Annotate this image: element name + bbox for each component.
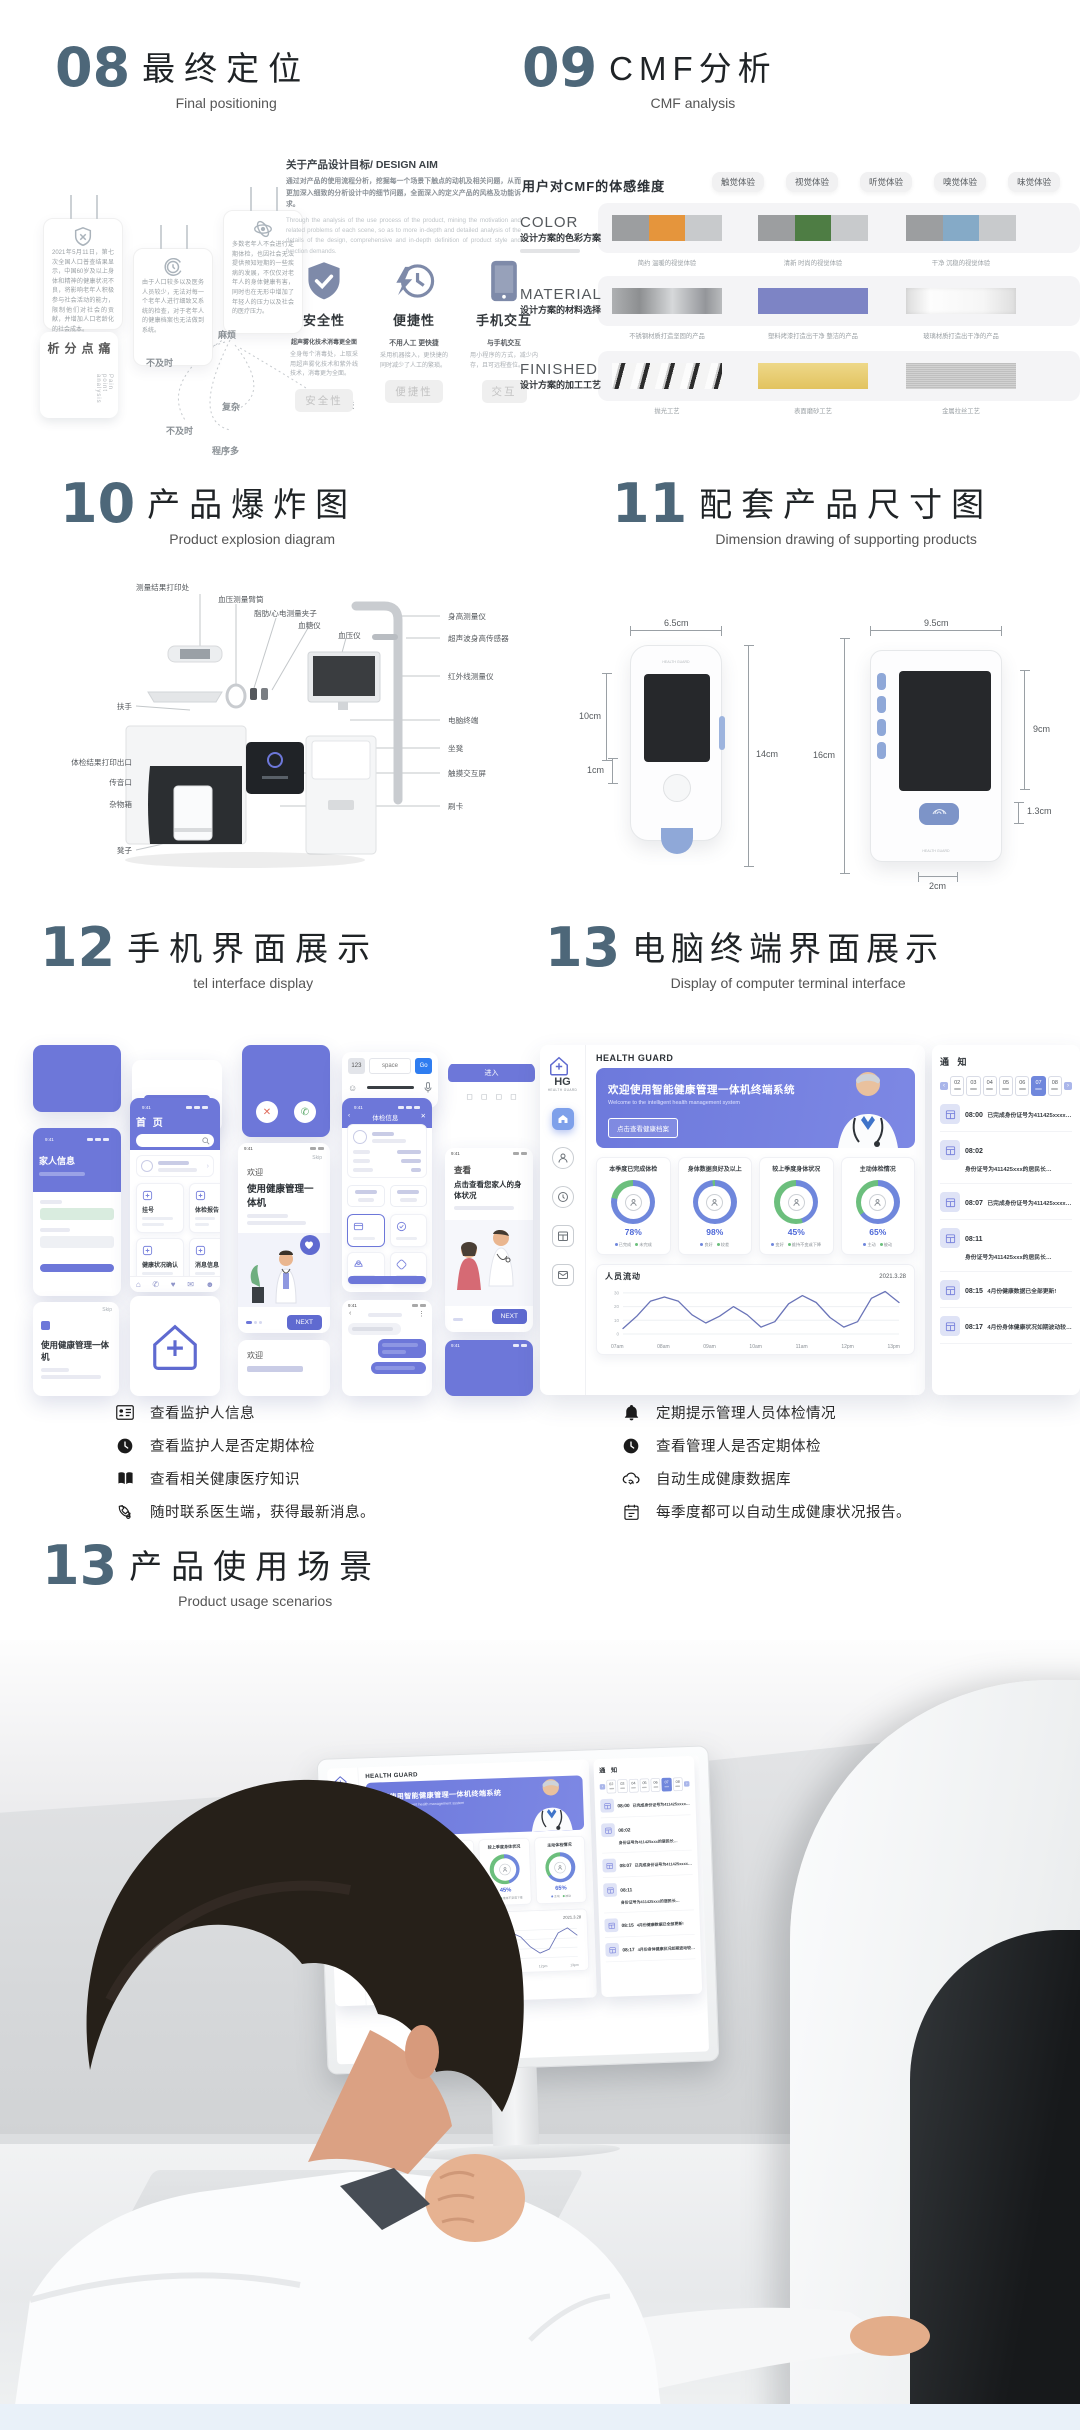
tab-chat-icon[interactable]: ✆ xyxy=(152,1280,159,1289)
pain-analysis-label-en: Pain point analysis xyxy=(45,374,113,408)
device-brand: HEALTH GUARD xyxy=(631,660,721,664)
part-label-glucose-meter: 血糖仪 xyxy=(298,620,321,631)
hangup-icon[interactable]: ✕ xyxy=(256,1101,278,1123)
device-brand: HEALTH GUARD xyxy=(871,849,1001,853)
swatch-caption: 玻璃材质打造出干净的产品 xyxy=(896,331,1026,340)
finish-swatch xyxy=(758,363,868,389)
part-label-infrared-meter: 红外线测量仪 xyxy=(448,671,494,682)
dim-button-1: 1cm xyxy=(612,758,613,784)
part-label-height-meter: 身高测量仪 xyxy=(448,611,486,622)
nav-user-icon[interactable] xyxy=(552,1147,574,1169)
section-08-header: 08 最终定位 Final positioning xyxy=(55,42,310,111)
part-label-seat: 坐凳 xyxy=(448,743,463,754)
phone-checkup-info: 9:41 ‹ 体检信息 ✕ xyxy=(342,1098,432,1292)
legend-item: 定期提示管理人员体检情况 xyxy=(622,1402,911,1423)
phone-home: 9:41 首 页 › 挂号 xyxy=(130,1098,220,1292)
phone-call-icon xyxy=(116,1504,134,1520)
dimension-drawing: HEALTH GUARD 6.5cm 14cm 10cm 1cm HEALTH … xyxy=(560,600,1080,900)
home-title: 首 页 xyxy=(136,1114,214,1129)
cmf-row-note-skeleton xyxy=(520,249,580,253)
status-time: 9:41 xyxy=(142,1105,151,1110)
chevron-right-icon: › xyxy=(207,1163,209,1170)
status-time: 9:41 xyxy=(451,1151,460,1156)
swatch-caption: 干净 沉稳的视觉体验 xyxy=(896,258,1026,267)
cmf-row-sub: 设计方案的色彩方案 xyxy=(520,231,601,244)
donut-ring xyxy=(774,1180,818,1224)
terminal-sidebar: HG HEALTH GUARD xyxy=(540,1045,586,1395)
stat-card: 较上季度身体状况 45% 变好 维持不变或下降 xyxy=(759,1157,834,1255)
part-label-computer-terminal: 电脑终端 xyxy=(448,715,478,726)
design-aim-heading: 关于产品设计目标/ DESIGN AIM xyxy=(286,157,438,172)
calendar-icon xyxy=(940,1104,960,1124)
legend-item: 查看监护人信息 xyxy=(116,1402,375,1423)
device-side-buttons xyxy=(877,673,886,759)
date-selector: ‹ 02030405060708 › xyxy=(940,1076,1072,1096)
swatch-caption: 不锈钢材质打造坚固的产品 xyxy=(602,331,732,340)
section-title: 最终定位 xyxy=(142,42,310,90)
skip-link[interactable]: Skip xyxy=(33,1302,119,1313)
answer-call-icon[interactable]: ✆ xyxy=(294,1101,316,1123)
part-label-card-swipe: 刷卡 xyxy=(448,801,463,812)
legend-item: 查看相关健康医疗知识 xyxy=(116,1468,375,1489)
welcome-hello: 欢迎 xyxy=(247,1350,321,1361)
house-cross-logo-icon xyxy=(548,1055,570,1077)
x-tick-label: 11am xyxy=(796,1344,808,1350)
avatar xyxy=(141,1160,153,1172)
status-time: 9:41 xyxy=(451,1343,460,1348)
section-subtitle: Final positioning xyxy=(142,95,310,111)
doctor-photo xyxy=(825,1068,911,1148)
phone-call-screen: ✕ ✆ xyxy=(242,1045,330,1137)
person-icon xyxy=(625,1194,642,1211)
notification-item[interactable]: 08:00 已完成身份证号为411425xxxx… xyxy=(940,1096,1072,1132)
design-aim-cn: 通过对产品的使用流程分析，挖掘每一个场景下触点的动机及相关问题，从而更加深入细致… xyxy=(286,176,521,211)
donut-ring xyxy=(611,1180,655,1224)
cmf-row-name: MATERIAL xyxy=(520,286,602,303)
flow-title: 人员流动 xyxy=(605,1271,641,1282)
menu-item-icon xyxy=(195,1245,219,1256)
menu-item-icon xyxy=(142,1190,178,1201)
pain-card-text: 由于人口较多以及医务人员较少，无法对每一个老年人进行细致又系统的检查，对于老年人… xyxy=(142,280,204,334)
svg-text:20: 20 xyxy=(614,1304,620,1309)
dim-width-1: 6.5cm xyxy=(630,630,722,631)
x-tick-label: 13pm xyxy=(887,1344,900,1350)
section-11-header: 11 配套产品尺寸图 Dimension drawing of supporti… xyxy=(612,478,993,547)
flow-x-labels: 07am08am09am10am11am12pm13pm xyxy=(605,1344,906,1350)
part-label-storage-box: 杂物箱 xyxy=(60,799,132,810)
sense-chip: 视觉体验 xyxy=(786,172,838,192)
donut-ring xyxy=(856,1180,900,1224)
stat-card: 身体数据良好及以上 98% 良好 较差 xyxy=(678,1157,753,1255)
swatch-caption: 表面磨砂工艺 xyxy=(748,406,878,415)
phone-chat: 9:41 ‹⋮ xyxy=(342,1300,432,1396)
device-screen xyxy=(899,671,991,791)
section-13b-header: 13 产品使用场景 Product usage scenarios xyxy=(42,1540,381,1609)
tab-profile-icon[interactable]: ☻ xyxy=(206,1280,214,1289)
color-swatch xyxy=(906,215,1016,241)
phone-welcome: 9:41 Skip 欢迎 使用健康管理一体机 NEXT xyxy=(238,1143,330,1333)
phone-logo-card xyxy=(130,1296,220,1396)
color-swatch xyxy=(758,215,868,241)
keyword: 程序多 xyxy=(212,444,239,457)
next-button[interactable]: NEXT xyxy=(287,1315,322,1330)
phone-machine-card: Skip 使用健康管理一体机 xyxy=(33,1302,119,1396)
phone-card-purple-small: 9:41 xyxy=(445,1340,533,1396)
glucose-device: HEALTH GUARD xyxy=(630,645,722,841)
tab-bar: ⌂ ✆ ♥ ✉ ☻ xyxy=(130,1276,220,1292)
clock-icon xyxy=(622,1438,640,1454)
part-label-stool: 凳子 xyxy=(60,845,132,856)
section-10-header: 10 产品爆炸图 Product explosion diagram xyxy=(60,478,357,547)
ghost-chip: 安全性 xyxy=(295,389,353,412)
x-tick-label: 10am xyxy=(749,1344,762,1350)
swatch-caption: 金属拉丝工艺 xyxy=(896,406,1026,415)
next-button[interactable]: NEXT xyxy=(492,1309,527,1324)
x-tick-label: 09am xyxy=(703,1344,716,1350)
key-123[interactable]: 123 xyxy=(348,1058,365,1074)
tab-mail-icon[interactable]: ✉ xyxy=(187,1280,194,1289)
ghost-chip: 便捷性 xyxy=(385,380,443,403)
search-icon xyxy=(202,1137,210,1145)
x-tick-label: 07am xyxy=(611,1344,624,1350)
notification-item[interactable]: 08:15 4月份健康数据已全部更新! xyxy=(940,1272,1072,1308)
search-input[interactable] xyxy=(136,1134,214,1147)
finish-swatch xyxy=(906,363,1016,389)
color-swatch xyxy=(612,215,722,241)
nav-schedule-icon[interactable] xyxy=(552,1225,574,1247)
keyword: 不及时 xyxy=(146,356,173,369)
section-subtitle: CMF analysis xyxy=(609,95,776,111)
shield-x-icon xyxy=(72,226,94,248)
app-legend-left: 查看监护人信息 查看监护人是否定期体检 查看相关健康医疗知识 随时联系医生端，获… xyxy=(116,1402,375,1522)
avatar xyxy=(353,1130,367,1144)
calendar-icon xyxy=(940,1192,960,1212)
feature-convenience: 便捷性 不用人工 更快捷 采用机器接入，更快捷的同时减少了人工的繁琐。 便捷性 xyxy=(380,258,448,412)
nav-history-icon[interactable] xyxy=(552,1186,574,1208)
part-label-result-outlet: 体检结果打印出口 xyxy=(40,757,132,768)
finish-swatch xyxy=(612,363,722,389)
cmf-row-sub: 设计方案的加工工艺 xyxy=(520,378,601,391)
mic-icon[interactable] xyxy=(424,1082,432,1093)
skip-link[interactable]: Skip xyxy=(238,1151,330,1161)
legend-item: 随时联系医生端，获得最新消息。 xyxy=(116,1501,375,1522)
day-chip[interactable]: 06 xyxy=(1015,1076,1029,1096)
option-card[interactable] xyxy=(347,1214,385,1247)
status-time: 9:41 xyxy=(348,1303,357,1308)
dim-screen-1: 10cm xyxy=(606,673,607,761)
section-title: 手机界面展示 xyxy=(127,922,379,970)
home-menu: 挂号 体检报告 健康状况确认 xyxy=(130,1177,220,1292)
checkup-confirm-button[interactable] xyxy=(348,1276,426,1284)
dim-height-1: 14cm xyxy=(748,645,749,867)
section-subtitle: Product explosion diagram xyxy=(147,531,357,547)
day-chip[interactable]: 05 xyxy=(999,1076,1013,1096)
material-swatch xyxy=(612,288,722,314)
cmf-row-name: FINISHED xyxy=(520,361,598,378)
feature-safety: 安全性 超声雾化技术消毒更全面 全身每个消毒处，上取采用超声雾化技术和紫外线技术… xyxy=(290,258,358,412)
menu-item[interactable]: 挂号 xyxy=(136,1183,184,1233)
section-subtitle: Dimension drawing of supporting products xyxy=(699,531,993,547)
phone-welcome-small: 欢迎 xyxy=(238,1340,330,1396)
enter-card: 进入 ◻◻◻◻ xyxy=(448,1062,535,1104)
part-label-print-spot: 测量结果打印处 xyxy=(136,582,189,593)
donut-ring xyxy=(693,1180,737,1224)
part-label-armrest: 扶手 xyxy=(60,701,132,712)
footer-strip xyxy=(0,2404,1080,2430)
family-submit-button[interactable] xyxy=(40,1264,114,1272)
welcome-title: 使用健康管理一体机 xyxy=(247,1181,321,1209)
option-card[interactable] xyxy=(390,1214,428,1247)
phone-family-info: 9:41 家人信息 xyxy=(33,1128,121,1296)
keyword: 不及时 xyxy=(166,424,193,437)
tab-home-icon[interactable]: ⌂ xyxy=(136,1280,141,1289)
dot-icon: ◻ xyxy=(496,1092,503,1101)
back-icon[interactable]: ‹ xyxy=(348,1112,350,1122)
section-title: CMF分析 xyxy=(609,42,776,90)
doctor-user-silhouette xyxy=(0,1700,970,2430)
form-input[interactable] xyxy=(40,1236,114,1248)
stat-cards: 本季度已完成体检 78% 已完成 未完成 xyxy=(596,1157,915,1255)
pain-card-text: 2021年5月11日，第七次全国人口普查结果显示，中国60岁及以上身体和精神的健… xyxy=(52,250,114,333)
keyword: 麻烦 xyxy=(218,328,236,341)
terminal-ui: HG HEALTH GUARD xyxy=(540,1045,1080,1395)
feature-list: 安全性 超声雾化技术消毒更全面 全身每个消毒处，上取采用超声雾化技术和紫外线技术… xyxy=(290,258,538,412)
status-time: 9:41 xyxy=(45,1137,54,1142)
enter-button[interactable]: 进入 xyxy=(448,1064,535,1082)
svg-text:10: 10 xyxy=(614,1318,620,1323)
machine-card-title: 使用健康管理一体机 xyxy=(41,1339,111,1363)
sense-chip: 听觉体验 xyxy=(860,172,912,192)
id-card-icon xyxy=(116,1405,134,1420)
section-number: 09 xyxy=(522,42,597,93)
profile-row[interactable]: › xyxy=(136,1155,214,1177)
svg-text:30: 30 xyxy=(614,1290,620,1295)
phone-card-purple xyxy=(33,1045,121,1112)
flow-date: 2021.3.28 xyxy=(879,1274,906,1280)
brand-logo: HG HEALTH GUARD xyxy=(548,1055,578,1092)
more-icon[interactable]: ⋮ xyxy=(418,1310,425,1318)
menu-item-icon xyxy=(142,1245,178,1256)
x-tick-label: 08am xyxy=(657,1344,670,1350)
shield-check-icon xyxy=(290,258,358,304)
device-side-tab xyxy=(719,716,725,750)
notification-item[interactable]: 08:07 已完成身份证号为411425xxxx… xyxy=(940,1184,1072,1220)
pain-analysis-label: 痛点分析 xyxy=(45,342,113,371)
notice-title: 通 知 xyxy=(940,1055,1072,1068)
section-09-header: 09 CMF分析 CMF analysis xyxy=(522,42,777,111)
swatch-caption: 塑料烤漆打造出干净 整洁的产品 xyxy=(748,331,878,340)
legend-item: 自动生成健康数据库 xyxy=(622,1468,911,1489)
view-hello: 查看 xyxy=(454,1164,524,1176)
chat-bubble xyxy=(371,1362,426,1374)
nav-home-icon[interactable] xyxy=(552,1108,574,1130)
section-subtitle: Product usage scenarios xyxy=(129,1593,381,1609)
device-probe xyxy=(661,828,693,854)
sense-chip: 触觉体验 xyxy=(712,172,764,192)
notification-panel: 通 知 ‹ 02030405060708 › 08:00 已完成身份证号为411… xyxy=(932,1045,1080,1395)
stat-card: 本季度已完成体检 78% 已完成 未完成 xyxy=(596,1157,671,1255)
section-number: 12 xyxy=(40,922,115,973)
day-chip[interactable]: 07 xyxy=(1031,1076,1045,1096)
person-icon xyxy=(788,1194,805,1211)
swatch-caption: 抛光工艺 xyxy=(602,406,732,415)
sense-chip: 嗅觉体验 xyxy=(934,172,986,192)
form-input[interactable] xyxy=(40,1208,114,1220)
terminal-nav xyxy=(552,1108,574,1286)
legend-item: 查看管理人是否定期体检 xyxy=(622,1435,911,1456)
dot-icon: ◻ xyxy=(481,1092,488,1101)
bell-icon xyxy=(622,1404,640,1421)
book-icon xyxy=(116,1471,134,1486)
cloud-sync-icon xyxy=(622,1472,640,1486)
chevron-left-icon[interactable]: ‹ xyxy=(940,1082,948,1090)
x-tick-label: 12pm xyxy=(841,1344,854,1350)
cmf-row-sub: 设计方案的材料选择 xyxy=(520,303,601,316)
material-swatch xyxy=(906,288,1016,314)
notification-list: 08:00 已完成身份证号为411425xxxx… 08:02 身份证号为411… xyxy=(940,1096,1072,1344)
cmf-dimension-label: 用户对CMF的体感维度 xyxy=(522,176,665,195)
design-aim-en: Through the analysis of the use process … xyxy=(286,216,521,257)
section-title: 电脑终端界面展示 xyxy=(632,922,944,970)
day-chip[interactable]: 08 xyxy=(1048,1076,1062,1096)
welcome-hello: 欢迎 xyxy=(247,1167,321,1178)
section-number: 10 xyxy=(60,478,135,529)
doctor-illustration xyxy=(238,1233,330,1307)
home-indicator xyxy=(367,1086,414,1089)
hero-button[interactable]: 点击查看健康档案 xyxy=(608,1118,678,1138)
stat-card: 主动体检情况 65% 主动 被动 xyxy=(841,1157,916,1255)
family-title: 家人信息 xyxy=(39,1154,115,1167)
consult-illustration xyxy=(445,1220,533,1306)
clock-icon xyxy=(116,1438,134,1454)
pain-card-population: 2021年5月11日，第七次全国人口普查结果显示，中国60岁及以上身体和精神的健… xyxy=(43,218,123,330)
pain-card-staff: 由于人口较多以及医务人员较少，无法对每一个老年人进行细致又系统的检查，对于老年人… xyxy=(133,248,213,366)
tab-health-icon[interactable]: ♥ xyxy=(171,1280,176,1289)
chevron-right-icon[interactable]: › xyxy=(1064,1082,1072,1090)
section-number: 11 xyxy=(612,478,687,529)
checkup-title: 体检信息 xyxy=(372,1112,398,1122)
person-icon xyxy=(869,1194,886,1211)
device-button xyxy=(663,774,691,802)
section-13-header: 13 电脑终端界面展示 Display of computer terminal… xyxy=(545,922,944,991)
section-number: 13 xyxy=(545,922,620,973)
part-label-ecg-clip: 脂肪/心电测量夹子 xyxy=(254,608,317,619)
dim-reader-h: 1.3cm xyxy=(1018,802,1019,824)
terminal-dashboard: HG HEALTH GUARD xyxy=(540,1045,925,1395)
clock-flash-icon xyxy=(380,258,448,304)
status-time: 9:41 xyxy=(244,1146,253,1151)
part-label-touch-screen: 触摸交互屏 xyxy=(448,768,486,779)
rfid-reader xyxy=(919,803,959,825)
part-label-bp-cuff: 血压测量臂筒 xyxy=(218,594,264,605)
pain-card-text: 多数老年人不会进行定期体检，也因社会无法提供预知短期的一些疾病的发展，不仅仅对老… xyxy=(232,242,294,315)
terminal-device: HEALTH GUARD xyxy=(870,650,1002,862)
material-swatch xyxy=(758,288,868,314)
emoji-icon[interactable]: ☺ xyxy=(348,1083,357,1093)
page-dots xyxy=(453,1318,463,1321)
usage-scene-photo: HG HEALTH GUARD xyxy=(0,1640,1080,2430)
section-title: 配套产品尺寸图 xyxy=(699,478,993,526)
sense-chip-row: 触觉体验视觉体验听觉体验嗅觉体验味觉体验 xyxy=(712,172,1060,192)
dot-icon: ◻ xyxy=(466,1092,473,1101)
calendar-icon xyxy=(940,1280,960,1300)
notification-item[interactable]: 08:11 身份证号为411425xxx的居民长… xyxy=(940,1220,1072,1272)
phone-collage: ✕ ✆ 123 space Go ☺ 进入 ◻◻◻◻ 9:41 家人信息 xyxy=(30,1040,535,1398)
day-chip[interactable]: 02 xyxy=(950,1076,964,1096)
close-icon[interactable]: ✕ xyxy=(421,1112,426,1122)
nav-mail-icon[interactable] xyxy=(552,1264,574,1286)
section-subtitle: Display of computer terminal interface xyxy=(632,975,944,991)
sense-chip: 味觉体验 xyxy=(1008,172,1060,192)
app-icon xyxy=(41,1321,50,1330)
part-label-ultrasonic-sensor: 超声波身高传感器 xyxy=(448,633,509,644)
phone-view-family: 9:41 查看 点击查看您家人的身体状况 NEXT xyxy=(445,1148,533,1332)
back-icon[interactable]: ‹ xyxy=(349,1310,351,1318)
section-title: 产品使用场景 xyxy=(129,1540,381,1588)
notification-item[interactable]: 08:02 身份证号为411425xxx的居民长… xyxy=(940,1132,1072,1184)
legend-item: 查看监护人是否定期体检 xyxy=(116,1435,375,1456)
keyword: 复杂 xyxy=(222,400,240,413)
pain-analysis-tag: 痛点分析 Pain point analysis xyxy=(40,332,118,418)
menu-item[interactable]: 体检报告 xyxy=(189,1183,220,1233)
calendar-icon xyxy=(940,1316,960,1336)
part-label-voice-port: 传音口 xyxy=(60,777,132,788)
chat-bubble xyxy=(378,1339,426,1358)
swatch-caption: 简约 温暖的视觉体验 xyxy=(602,258,732,267)
terminal-brand: HEALTH GUARD xyxy=(596,1053,915,1063)
dim-reader-w: 2cm xyxy=(918,876,958,877)
day-chip[interactable]: 03 xyxy=(966,1076,980,1096)
house-cross-logo-icon xyxy=(148,1320,202,1374)
section-title: 产品爆炸图 xyxy=(147,478,357,526)
legend-item: 每季度都可以自动生成健康状况报告。 xyxy=(622,1501,911,1522)
cycle-clock-icon xyxy=(162,256,184,278)
section-12-header: 12 手机界面展示 tel interface display xyxy=(40,922,379,991)
swatch-caption: 清新 时尚的视觉体验 xyxy=(748,258,878,267)
notification-item[interactable]: 08:17 4月份身体健康状况如期波动较… xyxy=(940,1308,1072,1344)
hero-banner: 欢迎使用智能健康管理一体机终端系统 Welcome to the intelli… xyxy=(596,1068,915,1148)
chat-bubble xyxy=(348,1323,401,1335)
menu-item-icon xyxy=(195,1190,219,1201)
explosion-diagram: 测量结果打印处 血压测量臂筒 脂肪/心电测量夹子 血糖仪 血压仪 扶手 体检结果… xyxy=(40,560,545,905)
svg-text:0: 0 xyxy=(616,1332,619,1337)
dot-icon: ◻ xyxy=(510,1092,517,1101)
status-time: 9:41 xyxy=(354,1105,363,1110)
cmf-row-name: COLOR xyxy=(520,214,578,231)
view-title: 点击查看您家人的身体状况 xyxy=(454,1179,524,1201)
section-number: 08 xyxy=(55,42,130,93)
calendar-icon xyxy=(940,1228,960,1248)
app-legend-right: 定期提示管理人员体检情况 查看管理人是否定期体检 自动生成健康数据库 每季度都可… xyxy=(622,1402,911,1522)
device-screen xyxy=(644,674,710,762)
section-number: 13 xyxy=(42,1540,117,1591)
key-space[interactable]: space xyxy=(369,1058,411,1074)
dim-width-2: 9.5cm xyxy=(870,630,1002,631)
atom-icon xyxy=(252,218,274,240)
dim-screen-2: 9cm xyxy=(1024,670,1025,790)
part-label-bp-meter: 血压仪 xyxy=(338,630,361,641)
key-go[interactable]: Go xyxy=(415,1058,432,1074)
dim-height-2: 16cm xyxy=(844,638,845,874)
calendar-icon xyxy=(622,1504,640,1520)
flow-chart-panel: 人员流动 2021.3.28 3020100 07am08am09am10am1… xyxy=(596,1264,915,1355)
day-chip[interactable]: 04 xyxy=(983,1076,997,1096)
calendar-icon xyxy=(940,1140,960,1160)
people-flow-line-chart: 3020100 xyxy=(605,1282,905,1344)
person-icon xyxy=(706,1194,723,1211)
section-subtitle: tel interface display xyxy=(127,975,379,991)
